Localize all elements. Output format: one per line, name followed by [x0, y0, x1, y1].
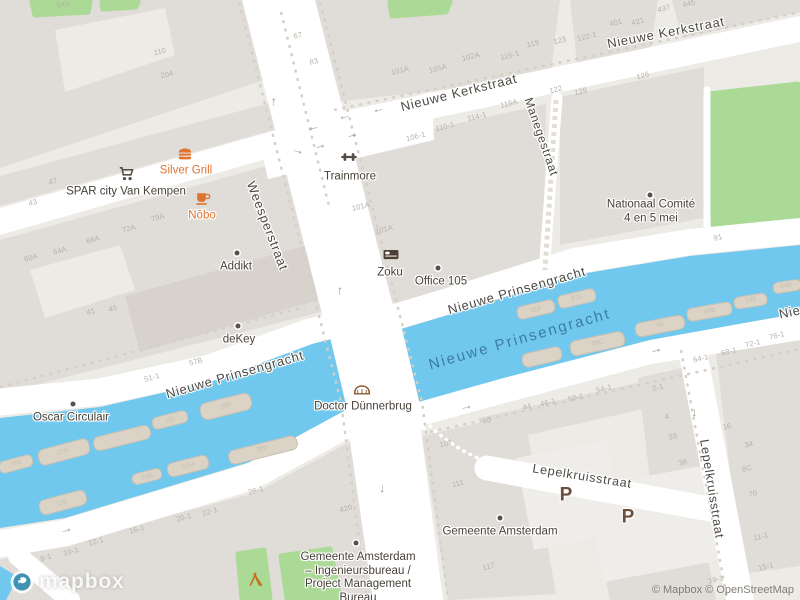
house-number: 26-1	[247, 485, 264, 497]
gemeente-amsterdam-label: Gemeente Amsterdam	[442, 525, 557, 539]
one-way-arrow-icon: →	[458, 397, 474, 414]
cart-icon	[119, 166, 136, 183]
boat-number: 22H	[181, 461, 194, 471]
nobo-label-line: Nōbo	[188, 209, 216, 223]
house-number: 68-1	[720, 346, 737, 358]
house-number: 118A	[499, 98, 518, 110]
gemeente-amsterdam-ingenieursbureau-dot	[354, 541, 359, 546]
oscar-circulair-dot	[71, 402, 76, 407]
addikt-label: Addikt	[220, 260, 252, 274]
house-number: 60A	[23, 252, 38, 264]
mapbox-logo[interactable]: mapbox	[10, 570, 125, 594]
house-number: 44	[522, 402, 532, 412]
street-label-lepelkruisstraat-h: Lepelkruisstraat	[531, 462, 632, 491]
gemeente-amsterdam-ingenieursbureau-label-line: Bureau	[300, 592, 415, 600]
nationaal-comite-4-en-5-mei-label-line: 4 en 5 mei	[607, 212, 695, 226]
boat-number: 24B	[745, 296, 758, 305]
office-105-label: Office 105	[415, 275, 467, 289]
house-number: 57B	[188, 356, 203, 368]
zoku-label: Zoku	[377, 266, 403, 280]
house-number: 8C	[741, 464, 752, 474]
gemeente-amsterdam-dot	[498, 516, 503, 521]
dekey-label: deKey	[223, 333, 256, 347]
oscar-circulair-label: Oscar Circulair	[33, 411, 109, 425]
house-number: 2-1	[652, 383, 665, 394]
house-number: 16	[722, 422, 732, 432]
boat-number: 77K	[9, 459, 22, 469]
house-number: 115-1	[500, 50, 521, 63]
house-number: 76-1	[768, 330, 785, 342]
house-number: 110-1	[435, 121, 456, 134]
one-way-arrow-icon: →	[648, 341, 664, 358]
house-number: 34	[744, 440, 754, 450]
house-number: 72A	[121, 223, 136, 235]
house-number: 126	[636, 70, 651, 81]
house-number: 72-1	[744, 338, 761, 350]
house-number: 8-1	[39, 553, 52, 564]
house-number: 46-1	[539, 397, 556, 409]
house-number: 114-1	[467, 111, 488, 124]
gemeente-amsterdam-ingenieursbureau-label: Gemeente Amsterdam– Ingenieursbureau /Pr…	[300, 551, 415, 600]
house-number: 128	[574, 86, 589, 97]
house-number: 67	[293, 31, 303, 41]
nobo-label: Nōbo	[188, 209, 216, 223]
dekey-label-line: deKey	[223, 333, 256, 347]
house-number: 437	[657, 3, 672, 14]
gemeente-amsterdam-label-line: Gemeente Amsterdam	[442, 525, 557, 539]
house-number: 445	[682, 0, 697, 10]
house-number: 11-1	[753, 531, 770, 542]
office-105-label-line: Office 105	[415, 275, 467, 289]
map-canvas[interactable]: Nieuwe KerkstraatNieuwe KerkstraatWeespe…	[0, 0, 800, 600]
gemeente-amsterdam-ingenieursbureau-label-line: Project Management	[300, 578, 415, 592]
house-number: 4	[664, 412, 670, 421]
street-label-lepelkruisstraat-v: Lepelkruisstraat	[696, 438, 725, 539]
house-number: 101A	[351, 201, 371, 213]
boat-number: 58C	[591, 338, 604, 347]
bed-icon	[383, 246, 400, 263]
house-number: 204	[160, 69, 175, 80]
house-number: 79A	[150, 212, 165, 224]
one-way-arrow-icon: →	[371, 104, 387, 121]
street-label-nieuwe-prinsengracht-east: Nieuwe Prinsengracht	[446, 264, 587, 317]
house-number: 28	[668, 432, 678, 442]
house-number: 107	[439, 438, 454, 449]
house-number: 43	[28, 198, 38, 208]
bridge-icon	[354, 381, 371, 398]
burger-icon	[177, 146, 194, 163]
house-number: 22-1	[201, 506, 218, 518]
mapbox-logo-text: mapbox	[39, 570, 125, 594]
house-number: 50-1	[567, 392, 584, 404]
oscar-circulair-label-line: Oscar Circulair	[33, 411, 109, 425]
trainmore-label-line: Trainmore	[324, 170, 376, 184]
cup-icon	[195, 190, 212, 207]
house-number: 41	[86, 307, 96, 317]
zoku-label-line: Zoku	[377, 266, 403, 280]
dekey-dot	[236, 324, 241, 329]
house-number: 47	[48, 177, 58, 187]
house-number: 117	[482, 561, 496, 572]
house-number: 54-1	[595, 383, 612, 395]
one-way-arrow-icon: →	[290, 141, 306, 158]
map-overlay: Nieuwe KerkstraatNieuwe KerkstraatWeespe…	[0, 0, 800, 600]
nationaal-comite-4-en-5-mei-label-line: Nationaal Comité	[607, 199, 695, 213]
house-number: 649	[56, 0, 70, 10]
house-number: 40	[482, 416, 492, 426]
house-number: 106-1	[405, 131, 426, 144]
street-label-weesperstraat: Weesperstraat	[243, 179, 290, 272]
parking-symbol: P	[560, 486, 573, 507]
boat-number: 30B	[256, 444, 269, 454]
house-number: 421	[631, 16, 646, 27]
house-number: 10-1	[62, 546, 79, 558]
attribution[interactable]: © Mapbox © OpenStreetMap	[652, 584, 794, 596]
house-number: 12-1	[87, 536, 104, 548]
house-number: 105A	[428, 63, 448, 75]
dumbbell-icon	[341, 149, 358, 166]
house-number: 119	[526, 38, 540, 49]
house-number: 20-1	[175, 512, 192, 524]
street-label-nieuwe-kerkstraat-east: Nieuwe Kerkstraat	[606, 15, 726, 52]
house-number: 45	[108, 304, 118, 314]
house-number: 122-1	[576, 31, 597, 44]
house-number: 111	[451, 479, 465, 490]
one-way-arrow-icon: →	[344, 126, 360, 143]
house-number: 123	[553, 35, 568, 46]
house-number: 64-1	[692, 353, 709, 365]
house-number: 64A	[52, 245, 67, 257]
addikt-dot	[235, 251, 240, 256]
house-number: 83	[309, 57, 319, 67]
spar-city-van-kempen-label-line: SPAR city Van Kempen	[66, 185, 186, 199]
gemeente-amsterdam-ingenieursbureau-label-line: Gemeente Amsterdam	[300, 551, 415, 565]
house-number: 110	[153, 46, 167, 57]
nationaal-comite-4-en-5-mei-label: Nationaal Comité4 en 5 mei	[607, 199, 695, 226]
one-way-arrow-icon: →	[330, 284, 346, 299]
one-way-arrow-icon: →	[688, 406, 704, 420]
house-number: 420	[339, 503, 354, 514]
boat-number: 14B	[141, 472, 154, 482]
silver-grill-label: Silver Grill	[160, 164, 212, 178]
office-105-dot	[436, 266, 441, 271]
spar-city-van-kempen-label: SPAR city Van Kempen	[66, 185, 186, 199]
house-number: 16-1	[128, 524, 145, 536]
addikt-label-line: Addikt	[220, 260, 252, 274]
boat-number: 110	[164, 415, 176, 424]
boat-number: 87K	[571, 293, 584, 303]
playground-icon	[248, 572, 265, 589]
house-number: 401	[609, 17, 624, 28]
mapbox-logo-icon	[10, 570, 34, 594]
boat-number: 48B	[704, 306, 717, 315]
one-way-arrow-icon: →	[312, 137, 328, 154]
house-number: 51-1	[143, 372, 160, 384]
house-number: 101A	[374, 224, 394, 236]
house-number: 102A	[461, 51, 481, 63]
boat-number: 91F	[530, 305, 543, 314]
doctor-dunnerbrug-label: Doctor Dünnerbrug	[314, 400, 412, 414]
nationaal-comite-4-en-5-mei-dot	[648, 193, 653, 198]
boat-number: 25F	[220, 401, 233, 411]
boat-number: 120	[56, 498, 68, 508]
silver-grill-label-line: Silver Grill	[160, 164, 212, 178]
house-number: 91	[713, 233, 723, 243]
one-way-arrow-icon: →	[58, 520, 74, 537]
gemeente-amsterdam-ingenieursbureau-label-line: – Ingenieursbureau /	[300, 565, 415, 579]
parking-symbol: P	[622, 508, 635, 529]
house-number: 15-1	[757, 561, 774, 573]
house-number: 101A	[390, 65, 410, 77]
house-number: 66A	[85, 234, 100, 246]
one-way-arrow-icon: →	[265, 96, 279, 109]
doctor-dunnerbrug-label-line: Doctor Dünnerbrug	[314, 400, 412, 414]
boat-number: 37H	[56, 447, 69, 457]
one-way-arrow-icon: →	[376, 482, 392, 497]
boat-number: 84B	[780, 282, 793, 291]
house-number: 70	[748, 489, 758, 499]
street-label-manegestraat: Manegestraat	[521, 96, 560, 178]
trainmore-label: Trainmore	[324, 170, 376, 184]
boat-number: 40	[656, 321, 664, 329]
house-number: 38	[678, 458, 688, 468]
house-number: 122	[549, 84, 564, 95]
street-label-nieuwe-prinsengracht-west: Nieuwe Prinsengracht	[164, 348, 305, 401]
